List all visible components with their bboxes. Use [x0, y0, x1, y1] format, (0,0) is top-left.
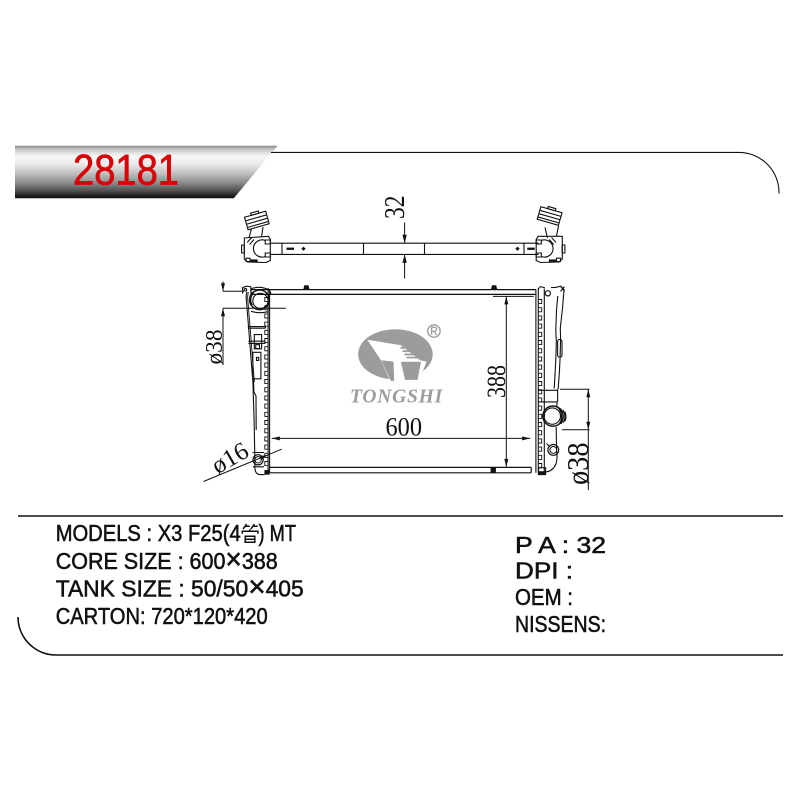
svg-text:32: 32 — [379, 196, 411, 220]
svg-text:388: 388 — [482, 365, 511, 398]
svg-text:MODELS : X3 F25(4: MODELS : X3 F25(4 — [56, 520, 241, 546]
svg-text:CORE SIZE : 600×388: CORE SIZE : 600×388 — [56, 543, 278, 576]
svg-text:TONGSHI: TONGSHI — [350, 387, 444, 408]
svg-text:NISSENS:: NISSENS: — [515, 611, 606, 637]
svg-text:DPI :: DPI : — [515, 558, 573, 584]
svg-text:600: 600 — [386, 412, 423, 442]
svg-text:ø16: ø16 — [207, 437, 253, 479]
svg-text:OEM :: OEM : — [515, 584, 573, 610]
svg-text:ø38: ø38 — [201, 330, 228, 365]
svg-text:CARTON: 720*120*420: CARTON: 720*120*420 — [56, 603, 268, 629]
svg-text:28181: 28181 — [73, 148, 179, 195]
svg-text:ø38: ø38 — [560, 443, 595, 486]
svg-text:P A : 32: P A : 32 — [515, 532, 606, 558]
svg-text:TANK SIZE : 50/50×405: TANK SIZE : 50/50×405 — [56, 571, 304, 604]
svg-text:) MT: ) MT — [259, 520, 297, 546]
